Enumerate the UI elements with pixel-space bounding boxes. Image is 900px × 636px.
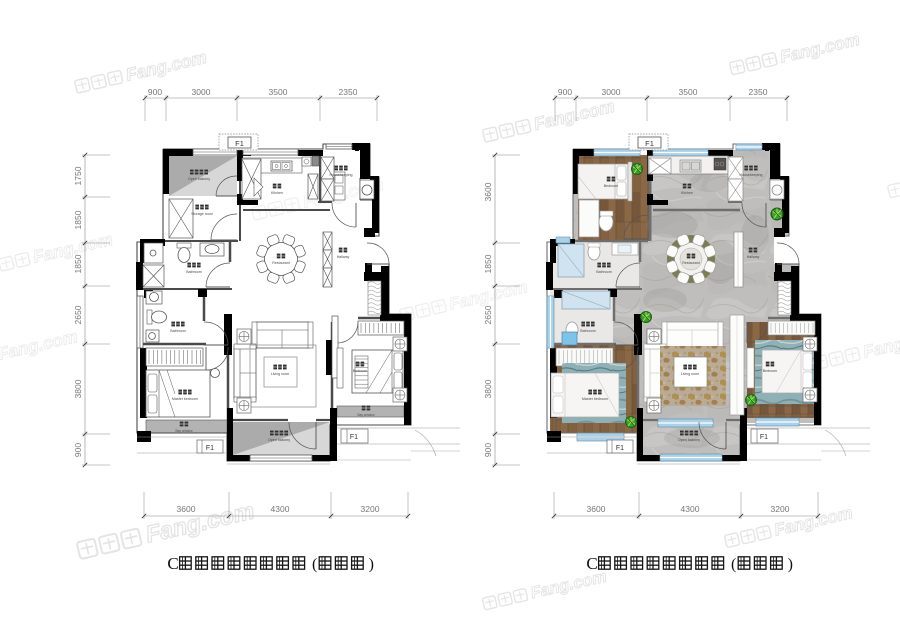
svg-text:3500: 3500 bbox=[679, 87, 698, 97]
svg-text:Bedroom: Bedroom bbox=[763, 369, 778, 373]
svg-text:2650: 2650 bbox=[73, 305, 83, 324]
svg-text:Living room: Living room bbox=[681, 372, 700, 376]
svg-text:(: ( bbox=[312, 556, 317, 573]
svg-text:3800: 3800 bbox=[73, 379, 83, 398]
svg-text:1850: 1850 bbox=[73, 210, 83, 229]
svg-text:Restaurant: Restaurant bbox=[272, 261, 290, 265]
svg-text:3600: 3600 bbox=[177, 504, 196, 514]
svg-text:Bedroom: Bedroom bbox=[353, 369, 368, 373]
svg-text:Restaurant: Restaurant bbox=[682, 261, 700, 265]
svg-text:900: 900 bbox=[148, 87, 162, 97]
svg-text:1850: 1850 bbox=[483, 254, 493, 273]
svg-text:Housekeeping: Housekeeping bbox=[740, 173, 763, 177]
svg-text:4300: 4300 bbox=[681, 504, 700, 514]
svg-text:Bathroom: Bathroom bbox=[580, 329, 596, 333]
svg-text:3000: 3000 bbox=[192, 87, 211, 97]
svg-text:Hallway: Hallway bbox=[747, 255, 760, 259]
svg-text:Living room: Living room bbox=[271, 372, 290, 376]
svg-text:900: 900 bbox=[73, 443, 83, 457]
svg-text:3600: 3600 bbox=[483, 182, 493, 201]
svg-text:3500: 3500 bbox=[269, 87, 288, 97]
svg-text:Storage room: Storage room bbox=[191, 212, 213, 216]
svg-text:900: 900 bbox=[558, 87, 572, 97]
svg-text:): ) bbox=[788, 556, 793, 573]
svg-text:Bathroom: Bathroom bbox=[170, 329, 186, 333]
svg-text:3000: 3000 bbox=[602, 87, 621, 97]
svg-text:Bathroom: Bathroom bbox=[596, 270, 612, 274]
svg-text:Master bedroom: Master bedroom bbox=[172, 397, 198, 401]
svg-text:F1: F1 bbox=[760, 434, 768, 441]
svg-text:F1: F1 bbox=[235, 139, 244, 148]
svg-text:2350: 2350 bbox=[749, 87, 768, 97]
svg-text:3800: 3800 bbox=[483, 379, 493, 398]
svg-text:3600: 3600 bbox=[587, 504, 606, 514]
svg-text:1850: 1850 bbox=[73, 254, 83, 273]
svg-text:Kitchen: Kitchen bbox=[271, 191, 283, 195]
svg-text:Kitchen: Kitchen bbox=[681, 191, 693, 195]
svg-text:Hallway: Hallway bbox=[337, 255, 350, 259]
svg-text:Housekeeping: Housekeeping bbox=[330, 173, 353, 177]
svg-text:Open balcony: Open balcony bbox=[188, 177, 210, 181]
svg-text:(: ( bbox=[731, 556, 736, 573]
svg-text:C: C bbox=[167, 554, 178, 573]
svg-text:Master bedroom: Master bedroom bbox=[582, 397, 608, 401]
svg-text:F1: F1 bbox=[645, 139, 654, 148]
svg-text:F1: F1 bbox=[206, 445, 214, 452]
svg-text:3200: 3200 bbox=[771, 504, 790, 514]
svg-text:Open balcony: Open balcony bbox=[678, 438, 700, 442]
svg-text:Bay window: Bay window bbox=[357, 413, 375, 417]
svg-text:3200: 3200 bbox=[361, 504, 380, 514]
svg-text:Bathroom: Bathroom bbox=[186, 270, 202, 274]
svg-text:F1: F1 bbox=[350, 434, 358, 441]
svg-text:2350: 2350 bbox=[339, 87, 358, 97]
svg-text:900: 900 bbox=[483, 443, 493, 457]
svg-text:Open balcony: Open balcony bbox=[268, 438, 290, 442]
svg-text:1750: 1750 bbox=[73, 166, 83, 185]
svg-text:F1: F1 bbox=[616, 445, 624, 452]
svg-text:C: C bbox=[586, 554, 597, 573]
svg-text:Bedroom: Bedroom bbox=[604, 184, 619, 188]
svg-text:): ) bbox=[369, 556, 374, 573]
svg-text:4300: 4300 bbox=[271, 504, 290, 514]
svg-text:Bay window: Bay window bbox=[175, 429, 193, 433]
svg-text:2650: 2650 bbox=[483, 305, 493, 324]
